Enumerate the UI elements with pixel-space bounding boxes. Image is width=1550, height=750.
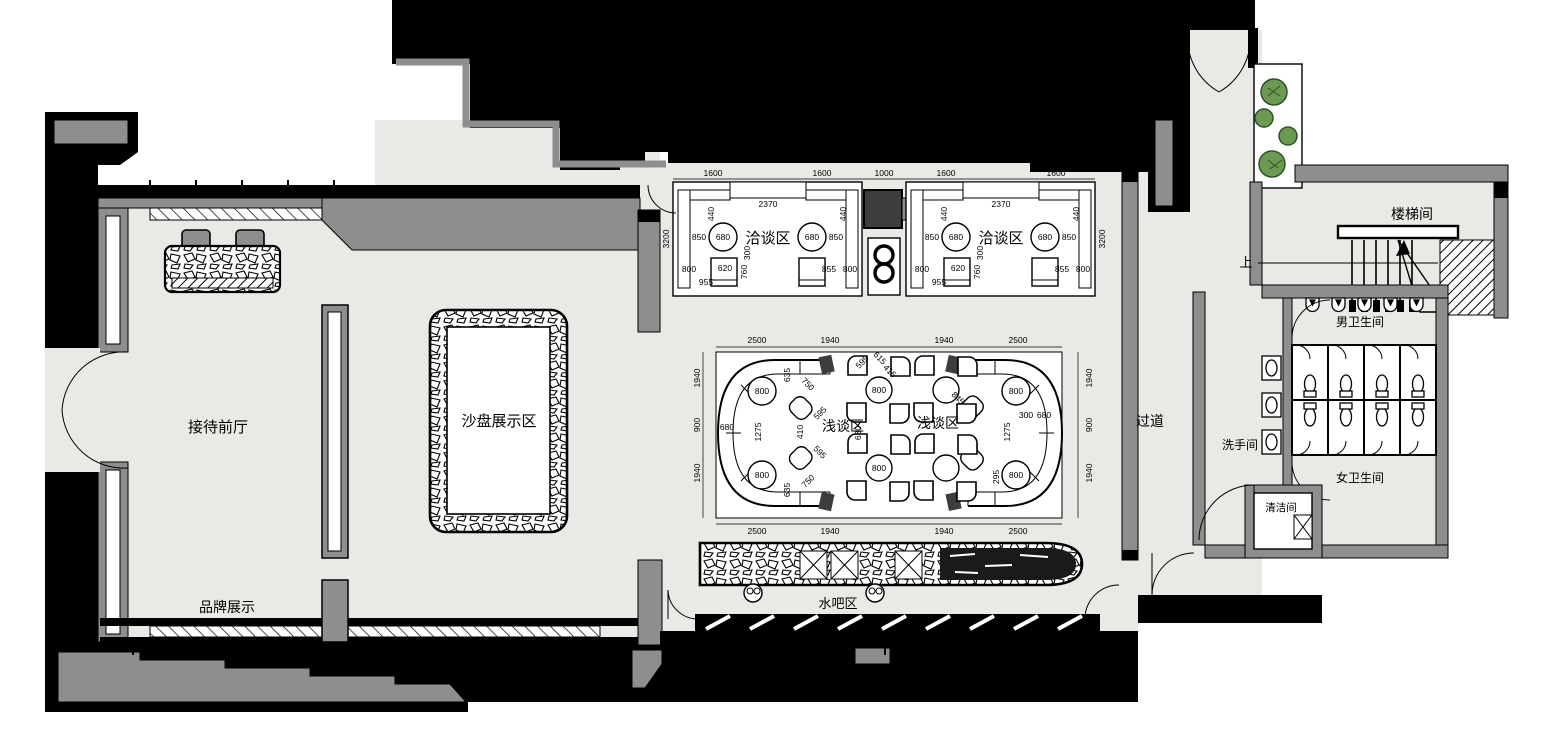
dim: 800 <box>1009 386 1023 396</box>
dim: 440 <box>939 207 949 221</box>
dim: 900 <box>692 418 702 432</box>
plant-icon <box>1279 127 1297 145</box>
dim: 620 <box>951 263 965 273</box>
reception-ne-wedge <box>322 198 640 250</box>
dim: 300 <box>1019 410 1033 420</box>
dim: 800 <box>843 264 857 274</box>
middle-table-4 <box>933 455 959 481</box>
poche-top-right <box>1030 0 1148 172</box>
dim: 1940 <box>935 526 954 536</box>
dim: 850 <box>829 232 843 242</box>
dim: 680 <box>1038 232 1052 242</box>
meeting1-niche <box>730 182 806 198</box>
corridor-left-wall-cap-bottom <box>1122 550 1138 560</box>
dim: 800 <box>755 386 769 396</box>
dim: 800 <box>915 264 929 274</box>
dim: 680 <box>949 232 963 242</box>
dim: 680 <box>716 232 730 242</box>
meeting1-bench-tl <box>690 190 730 200</box>
hall-center-wall-lower <box>638 560 662 645</box>
dim: 440 <box>838 207 848 221</box>
label-water-bar: 水吧区 <box>818 596 857 611</box>
lounge-area: 浅谈区 浅谈区 2500 1940 1940 2500 2500 1940 19… <box>692 335 1094 536</box>
dim: 800 <box>682 264 696 274</box>
label-sand-table: 沙盘展示区 <box>461 412 536 430</box>
stair-right-wall <box>1494 182 1508 318</box>
dim: 440 <box>706 207 716 221</box>
entrance-recess <box>45 348 100 472</box>
dim: 955 <box>699 277 713 287</box>
dim: 680 <box>720 422 734 432</box>
dim: 900 <box>1084 418 1094 432</box>
dim: 1600 <box>704 168 723 178</box>
dim: 3200 <box>661 229 671 248</box>
corridor-left-wall <box>1122 172 1138 560</box>
divider-screen <box>864 190 902 228</box>
dim: 1940 <box>1084 463 1094 482</box>
label-up: 上 <box>1239 255 1252 270</box>
meeting2-niche <box>963 182 1039 198</box>
dim: 300 <box>975 246 985 260</box>
wash-basins <box>1262 356 1281 454</box>
dim: 2500 <box>1009 526 1028 536</box>
bar-sink-2 <box>866 584 884 602</box>
dim: 1940 <box>692 368 702 387</box>
dim: 300 <box>742 246 752 260</box>
dim: 1940 <box>821 335 840 345</box>
bar-dark-top <box>940 548 1076 580</box>
reception-desk-front <box>172 278 273 288</box>
label-mens-wc: 男卫生间 <box>1336 315 1384 329</box>
dim: 3200 <box>1097 229 1107 248</box>
dim: 680 <box>1037 410 1051 420</box>
partition-wall-upper-stripe <box>328 312 341 551</box>
top-display-case <box>150 208 322 220</box>
floor-plan-svg: 接待前厅 品牌展示 沙盘展示区 洽谈区 <box>0 0 1550 750</box>
dim: 680 <box>805 232 819 242</box>
corridor-left-wall-cap-top <box>1122 172 1138 182</box>
dim: 855 <box>1055 264 1069 274</box>
floor-plan-canvas: 接待前厅 品牌展示 沙盘展示区 洽谈区 <box>0 0 1550 750</box>
dim: 800 <box>1009 470 1023 480</box>
dim: 850 <box>692 232 706 242</box>
hall-center-wall-upper <box>638 210 660 332</box>
label-corridor: 过道 <box>1136 414 1164 430</box>
dim: 1940 <box>692 463 702 482</box>
dim: 800 <box>872 463 886 473</box>
figure8-seat <box>868 238 900 295</box>
dim: 2500 <box>748 335 767 345</box>
meeting2-bench-tr <box>1039 190 1079 200</box>
stair-corner-cap <box>1494 182 1508 198</box>
dim: 850 <box>1062 232 1076 242</box>
label-cleaning: 清洁间 <box>1265 501 1297 514</box>
left-wall-upper-stripe <box>106 216 120 344</box>
wc-right-wall <box>1436 298 1448 545</box>
dim: 2500 <box>748 526 767 536</box>
dim: 1940 <box>821 526 840 536</box>
dim: 2370 <box>759 199 778 209</box>
dim: 1275 <box>753 422 763 441</box>
dim: 410 <box>795 425 805 439</box>
dim: 1940 <box>1084 368 1094 387</box>
dim: 1600 <box>937 168 956 178</box>
wc-bottom-wall <box>1205 545 1448 558</box>
brand-display-case <box>150 626 600 637</box>
left-wing-gray <box>54 120 128 144</box>
reception-bottom-wall-2 <box>100 637 660 646</box>
stair-top-wall <box>1295 165 1508 182</box>
dim: 800 <box>755 470 769 480</box>
poche-bottom-right <box>1138 595 1322 623</box>
label-womens-wc: 女卫生间 <box>1336 470 1384 485</box>
left-wall-lower-stripe <box>106 470 120 634</box>
label-lounge2: 浅谈区 <box>917 416 959 432</box>
dim: 620 <box>718 263 732 273</box>
dim: 800 <box>1076 264 1090 274</box>
dim: 760 <box>739 265 749 279</box>
dim: 850 <box>925 232 939 242</box>
dim: 855 <box>822 264 836 274</box>
reception-top-wall-gray <box>98 198 322 208</box>
dim: 2500 <box>1009 335 1028 345</box>
poche-bottom-center <box>468 640 1138 702</box>
partition-wall-lower <box>322 580 348 642</box>
sand-table: 沙盘展示区 <box>430 310 567 532</box>
wc-top-wall <box>1262 285 1448 298</box>
label-meeting2: 洽谈区 <box>978 230 1023 247</box>
plant-icon <box>1259 151 1285 177</box>
dim: 295 <box>991 470 1001 484</box>
entry-column-gray <box>1155 120 1173 206</box>
reception-bottom-wall-1 <box>100 618 660 626</box>
dim: 1940 <box>935 335 954 345</box>
dim: 2370 <box>992 199 1011 209</box>
dim: 1275 <box>1002 422 1012 441</box>
dim: 440 <box>1071 207 1081 221</box>
dim: 635 <box>782 483 792 497</box>
stall-grid <box>1292 345 1436 455</box>
hall-center-wall-cap <box>638 210 660 222</box>
label-stairwell: 楼梯间 <box>1391 207 1433 223</box>
plant-icon <box>1255 109 1273 127</box>
reception-top-wall <box>98 185 640 198</box>
dim: 1600 <box>813 168 832 178</box>
label-brand: 品牌展示 <box>199 599 255 616</box>
meeting2-bench-tl <box>923 190 963 200</box>
label-meeting1: 洽谈区 <box>745 230 790 247</box>
bar-south-wall <box>660 631 1138 646</box>
label-reception: 接待前厅 <box>188 419 248 436</box>
corridor-right-wall <box>1193 292 1205 545</box>
dim: 635 <box>782 368 792 382</box>
dim: 760 <box>972 265 982 279</box>
dim: 630 <box>853 426 863 440</box>
label-washroom: 洗手间 <box>1222 438 1258 452</box>
dim: 955 <box>932 277 946 287</box>
bar-sink-1 <box>744 584 762 602</box>
dim: 1600 <box>1047 168 1066 178</box>
dim: 800 <box>872 385 886 395</box>
meeting1-bench-tr <box>806 190 846 200</box>
stair-rail <box>1338 226 1458 238</box>
dim: 1000 <box>875 168 894 178</box>
